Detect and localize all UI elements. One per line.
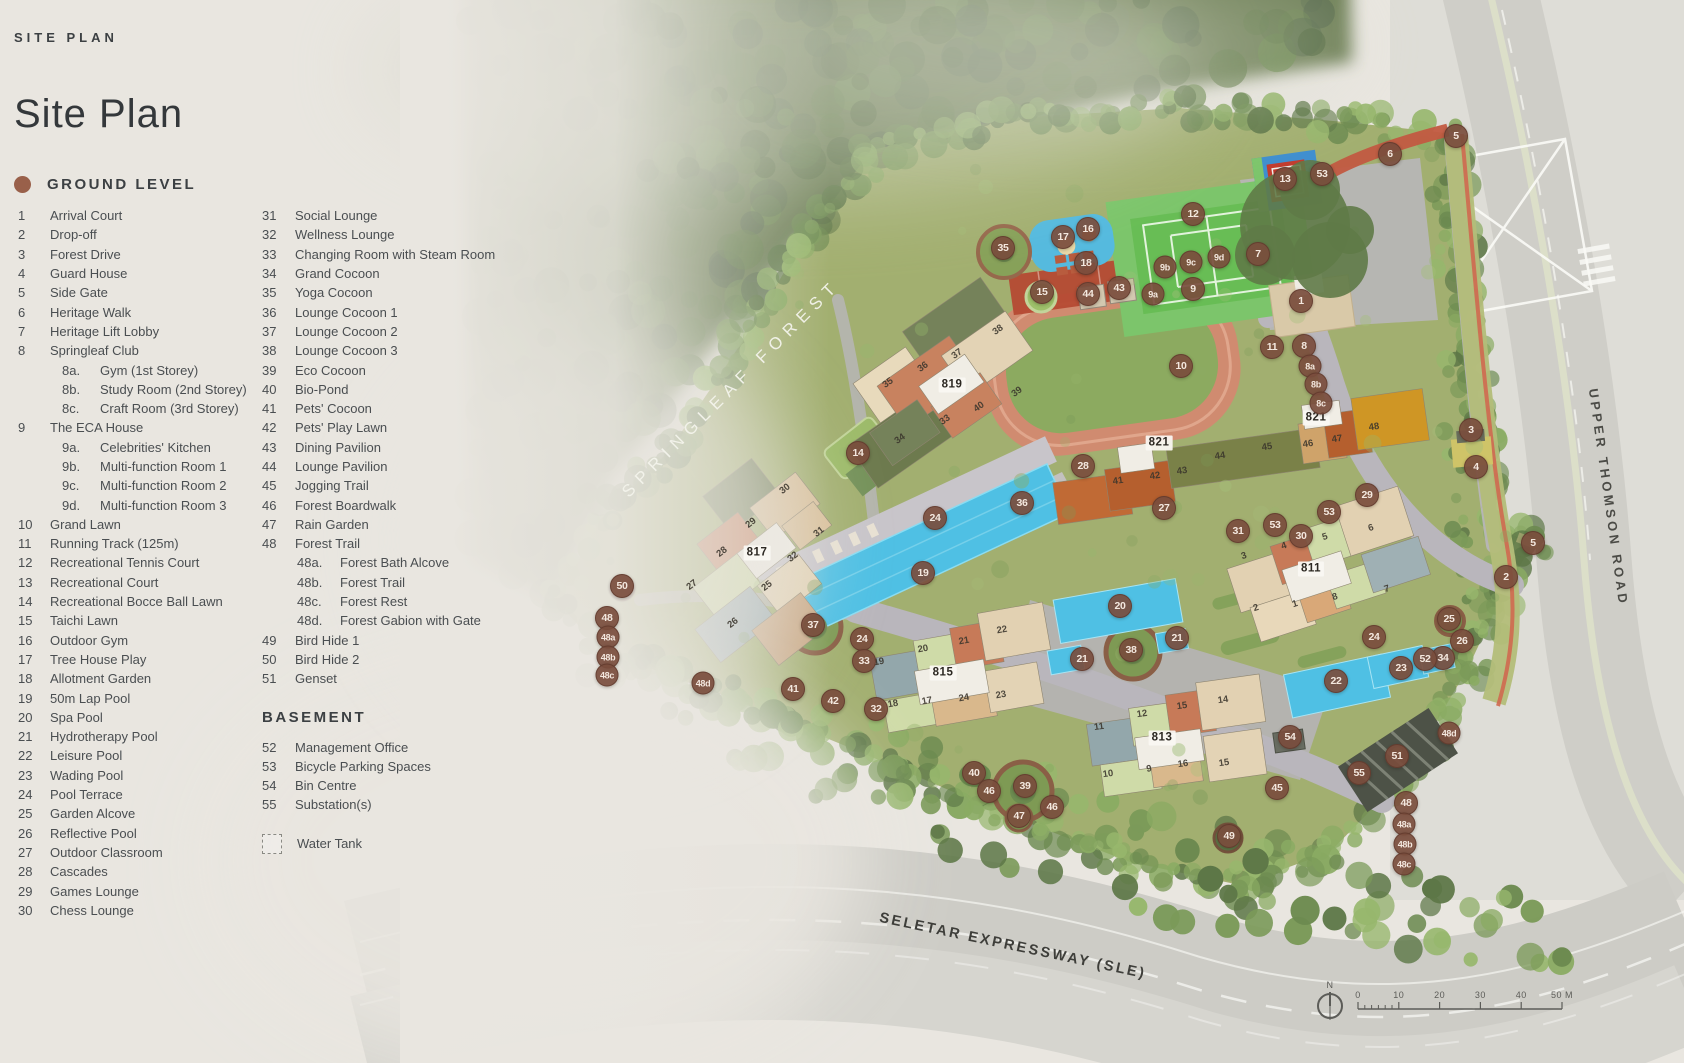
- svg-text:N: N: [1327, 980, 1334, 990]
- legend-item: 45Jogging Trail: [262, 476, 532, 495]
- legend-item: 21Hydrotherapy Pool: [14, 727, 262, 746]
- legend-item: 38Lounge Cocoon 3: [262, 341, 532, 360]
- legend-item: 33Changing Room with Steam Room: [262, 245, 532, 264]
- water-tank-label: Water Tank: [297, 836, 362, 851]
- legend-item: 17Tree House Play: [14, 650, 262, 669]
- legend-item: 4Guard House: [14, 264, 262, 283]
- legend-item: 42Pets' Play Lawn: [262, 418, 532, 437]
- legend-item: 49Bird Hide 1: [262, 631, 532, 650]
- legend-subitem: 9a.Celebrities' Kitchen: [14, 438, 262, 457]
- legend-item: 44Lounge Pavilion: [262, 457, 532, 476]
- legend-subitem: 8a.Gym (1st Storey): [14, 360, 262, 379]
- legend-item: 3Forest Drive: [14, 245, 262, 264]
- page-title: Site Plan: [14, 92, 183, 137]
- ground-level-dot-icon: [14, 176, 31, 193]
- legend-item: 47Rain Garden: [262, 515, 532, 534]
- ground-level-heading-text: GROUND LEVEL: [47, 176, 196, 193]
- legend-item: 37Lounge Cocoon 2: [262, 322, 532, 341]
- legend-item: 31Social Lounge: [262, 206, 532, 225]
- legend-subitem: 9d.Multi-function Room 3: [14, 495, 262, 514]
- legend-item: 9The ECA House: [14, 418, 262, 437]
- legend-subitem: 48b.Forest Trail: [262, 573, 532, 592]
- legend-item: 30Chess Lounge: [14, 901, 262, 920]
- water-tank-legend: Water Tank: [262, 834, 532, 854]
- legend-item: 52Management Office: [262, 737, 532, 756]
- legend-item: 5Side Gate: [14, 283, 262, 302]
- svg-text:50 M: 50 M: [1551, 990, 1573, 1000]
- page-eyebrow: SITE PLAN: [14, 30, 118, 45]
- legend-item: 12Recreational Tennis Court: [14, 553, 262, 572]
- legend-item: 23Wading Pool: [14, 766, 262, 785]
- legend-item: 34Grand Cocoon: [262, 264, 532, 283]
- legend-item: 24Pool Terrace: [14, 785, 262, 804]
- legend-item: 16Outdoor Gym: [14, 631, 262, 650]
- svg-text:10: 10: [1393, 990, 1404, 1000]
- legend-item: 55Substation(s): [262, 795, 532, 814]
- legend-item: 8Springleaf Club: [14, 341, 262, 360]
- legend-subitem: 8c.Craft Room (3rd Storey): [14, 399, 262, 418]
- legend-item: 54Bin Centre: [262, 776, 532, 795]
- legend-item: 27Outdoor Classroom: [14, 843, 262, 862]
- legend-item: 41Pets' Cocoon: [262, 399, 532, 418]
- legend-item: 29Games Lounge: [14, 881, 262, 900]
- legend-item: 32Wellness Lounge: [262, 225, 532, 244]
- legend-item: 50Bird Hide 2: [262, 650, 532, 669]
- legend-item: 11Running Track (125m): [14, 534, 262, 553]
- svg-text:0: 0: [1355, 990, 1361, 1000]
- legend-item: 15Taichi Lawn: [14, 611, 262, 630]
- legend-item: 18Allotment Garden: [14, 669, 262, 688]
- site-plan-page: SPRINGLEAF FOREST UPPER THOMSON ROAD SEL…: [0, 0, 1684, 1063]
- svg-text:20: 20: [1434, 990, 1445, 1000]
- legend-item: 39Eco Cocoon: [262, 360, 532, 379]
- legend-item: 7Heritage Lift Lobby: [14, 322, 262, 341]
- basement-heading: BASEMENT: [262, 709, 532, 726]
- legend-item: 28Cascades: [14, 862, 262, 881]
- legend-item: 14Recreational Bocce Ball Lawn: [14, 592, 262, 611]
- legend-item: 10Grand Lawn: [14, 515, 262, 534]
- legend-item: 2Drop-off: [14, 225, 262, 244]
- legend-subitem: 9b.Multi-function Room 1: [14, 457, 262, 476]
- ground-level-heading: GROUND LEVEL: [14, 176, 196, 193]
- legend-item: 35Yoga Cocoon: [262, 283, 532, 302]
- legend-subitem: 9c.Multi-function Room 2: [14, 476, 262, 495]
- legend-item: 43Dining Pavilion: [262, 438, 532, 457]
- legend-basement-list: 52Management Office53Bicycle Parking Spa…: [262, 737, 532, 814]
- legend-item: 40Bio-Pond: [262, 380, 532, 399]
- svg-text:40: 40: [1516, 990, 1527, 1000]
- legend-column-2: 31Social Lounge32Wellness Lounge33Changi…: [262, 206, 532, 688]
- legend-item: 13Recreational Court: [14, 573, 262, 592]
- legend-item: 53Bicycle Parking Spaces: [262, 757, 532, 776]
- legend-item: 20Spa Pool: [14, 708, 262, 727]
- legend-subitem: 48c.Forest Rest: [262, 592, 532, 611]
- legend-item: 22Leisure Pool: [14, 746, 262, 765]
- legend-column-1: 1Arrival Court2Drop-off3Forest Drive4Gua…: [14, 206, 262, 920]
- legend-subitem: 48a.Forest Bath Alcove: [262, 553, 532, 572]
- legend-subitem: 48d.Forest Gabion with Gate: [262, 611, 532, 630]
- svg-text:30: 30: [1475, 990, 1486, 1000]
- legend-item: 36Lounge Cocoon 1: [262, 302, 532, 321]
- legend-item: 25Garden Alcove: [14, 804, 262, 823]
- legend-item: 48Forest Trail: [262, 534, 532, 553]
- water-tank-swatch-icon: [262, 834, 282, 854]
- legend-subitem: 8b.Study Room (2nd Storey): [14, 380, 262, 399]
- legend-item: 46Forest Boardwalk: [262, 495, 532, 514]
- legend-item: 1Arrival Court: [14, 206, 262, 225]
- legend-item: 1950m Lap Pool: [14, 688, 262, 707]
- legend-item: 51Genset: [262, 669, 532, 688]
- legend-item: 6Heritage Walk: [14, 302, 262, 321]
- legend-item: 26Reflective Pool: [14, 824, 262, 843]
